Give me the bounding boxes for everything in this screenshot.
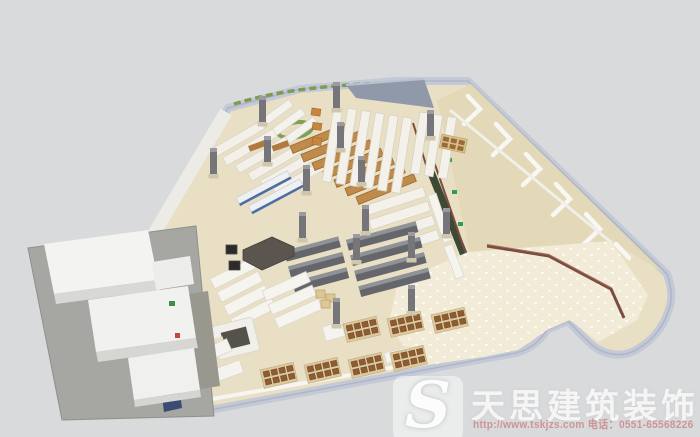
- watermark-phone-label: 电话：: [585, 419, 619, 431]
- column: [298, 212, 308, 243]
- column: [302, 165, 312, 196]
- column: [263, 136, 273, 167]
- column: [361, 205, 371, 236]
- entrance-plot: [28, 226, 220, 420]
- supermarket-3d-floorplan: [0, 0, 700, 437]
- black-fixture: [226, 245, 237, 254]
- watermark-website: http://www.tskjzs.com: [473, 419, 585, 431]
- render-canvas: S 天思建筑装饰 http://www.tskjzs.com 电话：0551-6…: [0, 0, 700, 437]
- column: [332, 82, 342, 113]
- entrance-sign-red: [175, 333, 180, 338]
- column: [258, 96, 268, 127]
- lobby-block: [152, 256, 194, 290]
- column: [426, 110, 436, 141]
- column: [332, 298, 342, 329]
- watermark-contact-line: http://www.tskjzs.com 电话：0551-65568226: [473, 416, 693, 432]
- column: [336, 122, 346, 153]
- column: [407, 285, 417, 316]
- column: [407, 232, 417, 263]
- column: [442, 208, 452, 239]
- watermark-logo-letter: S: [405, 368, 451, 437]
- entrance-sign-green: [169, 301, 175, 306]
- backroom-floor: [437, 84, 664, 273]
- column: [209, 148, 219, 179]
- black-fixture: [229, 261, 240, 270]
- watermark-phone: 0551-65568226: [619, 419, 694, 431]
- watermark-logo: S: [393, 376, 463, 437]
- column: [357, 156, 367, 187]
- column: [352, 234, 362, 265]
